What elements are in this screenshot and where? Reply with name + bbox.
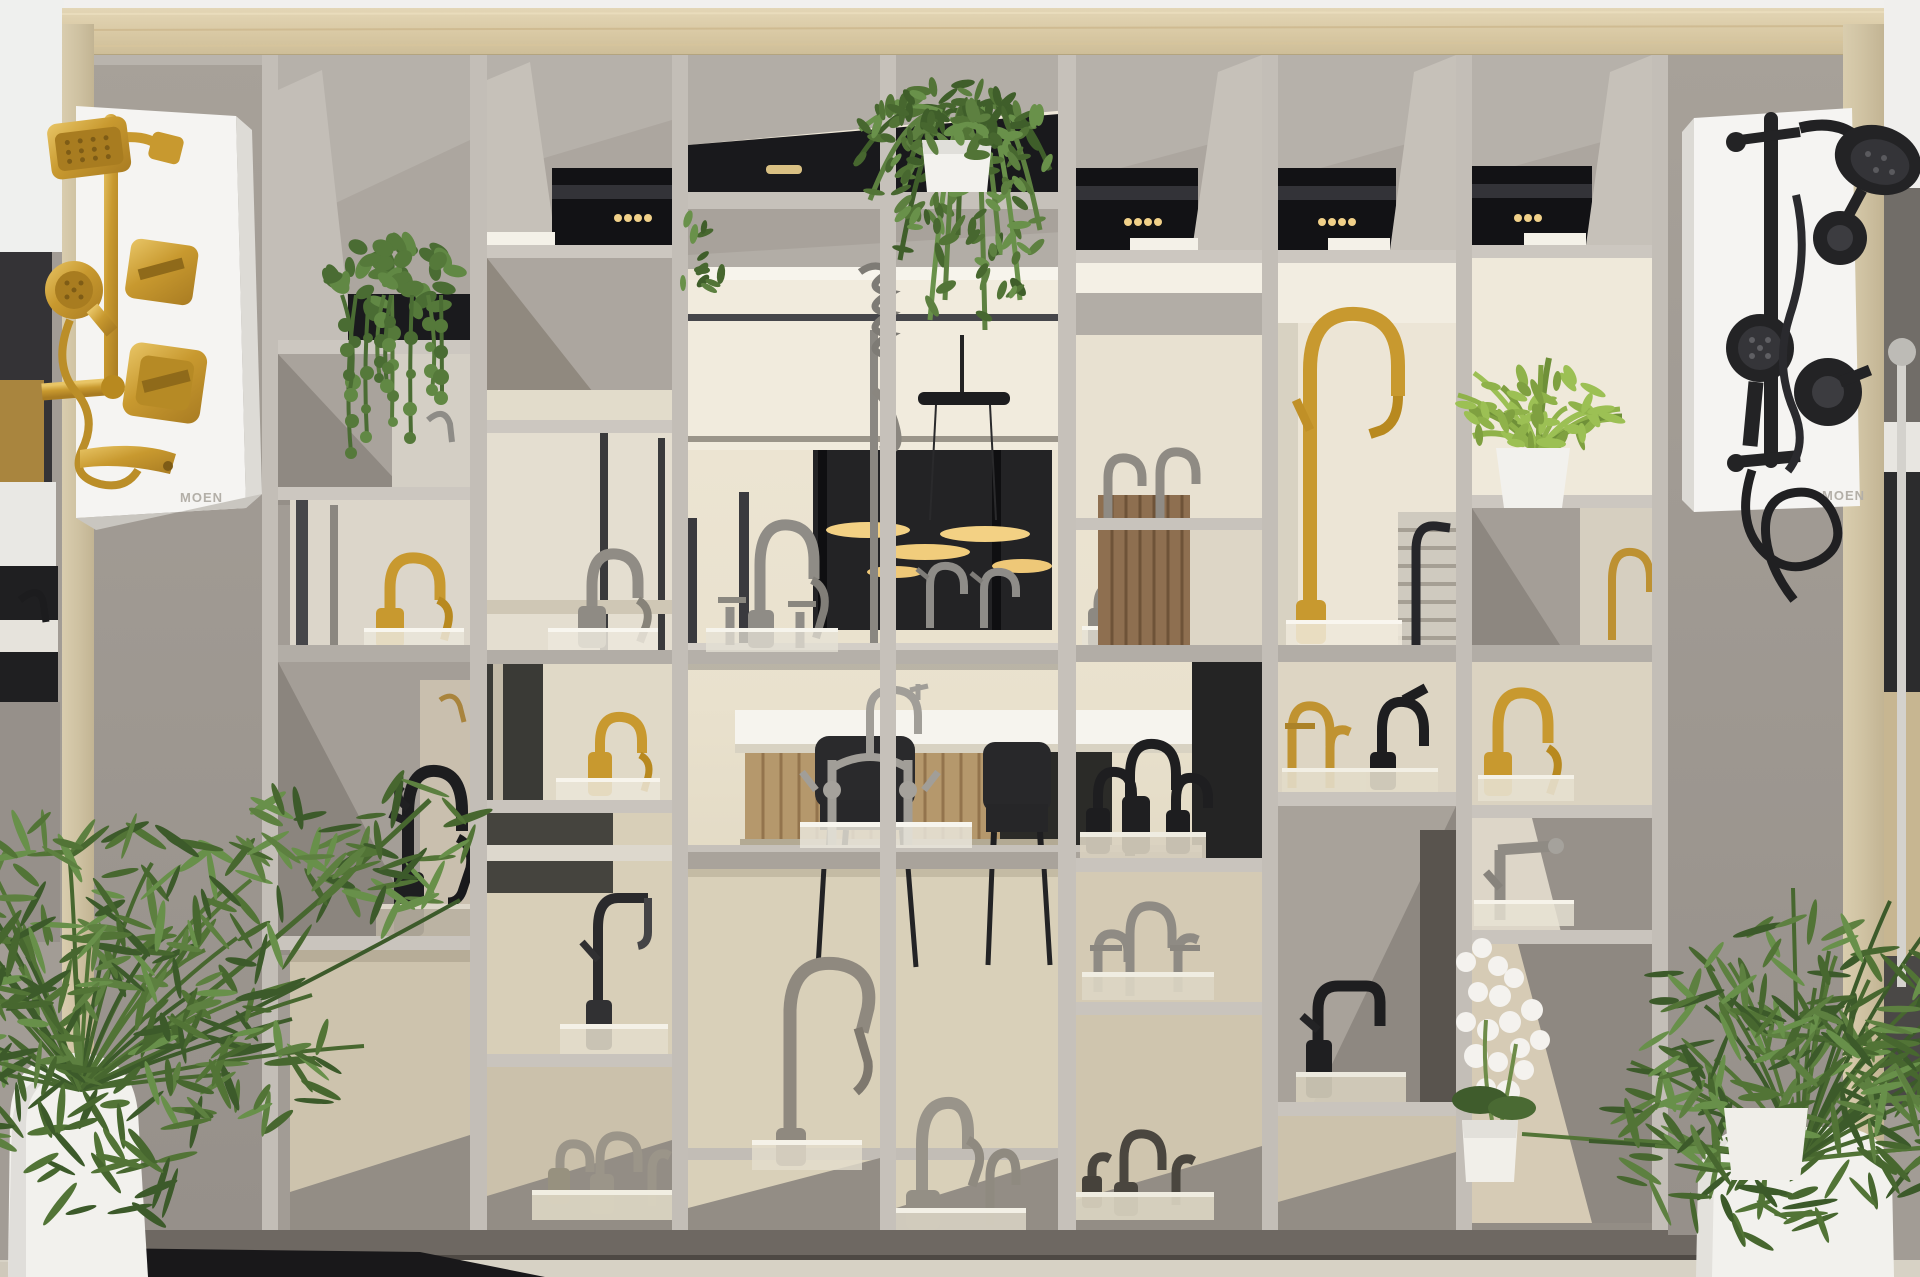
svg-text:MOEN: MOEN [180,490,223,505]
